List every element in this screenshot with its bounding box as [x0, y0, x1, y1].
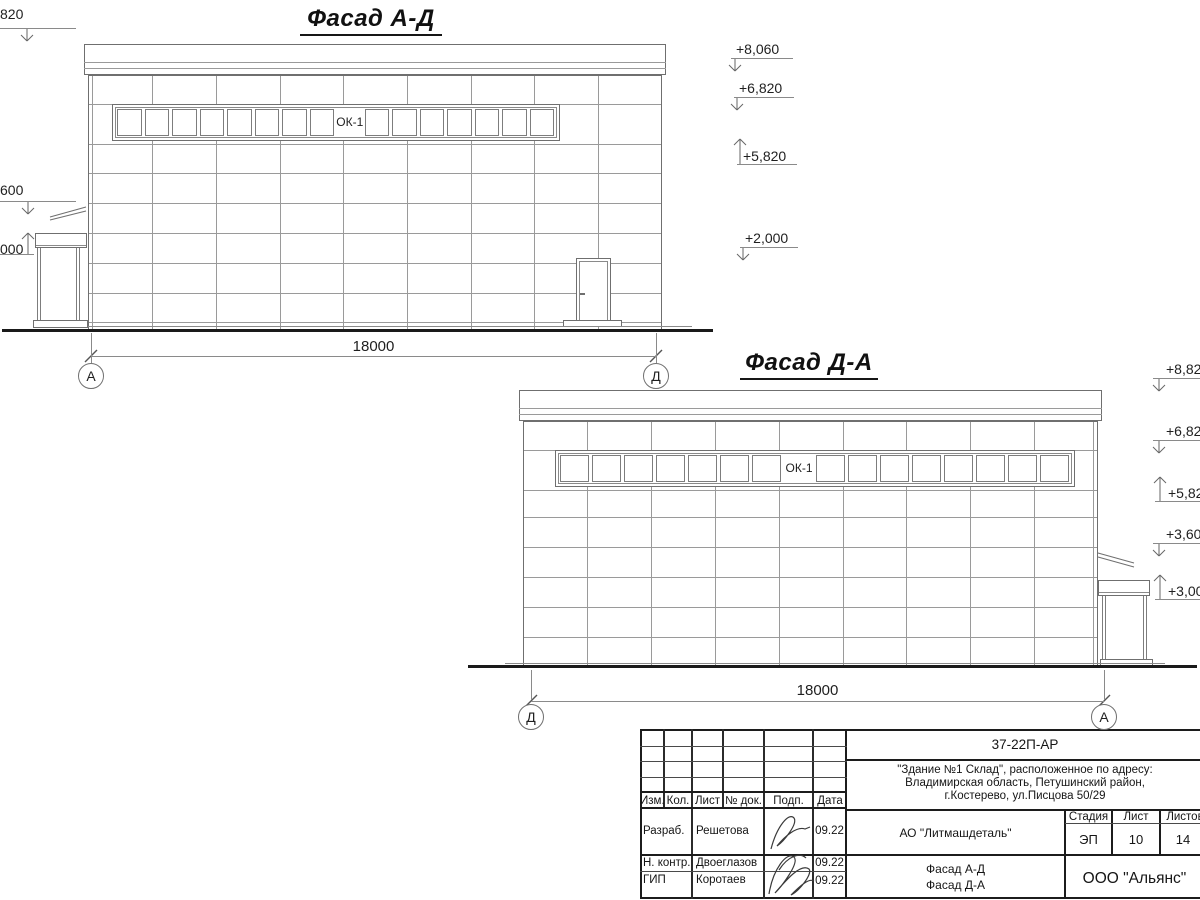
window-pane — [560, 455, 589, 482]
drawing-line — [1153, 550, 1159, 556]
drawing-line — [21, 35, 27, 41]
window-pane — [447, 109, 472, 136]
drawing-line — [28, 233, 34, 239]
signature-stroke — [779, 855, 806, 870]
window-pane — [624, 455, 653, 482]
signature-date: 09.22 — [813, 825, 846, 837]
panel-joint-line — [519, 414, 1102, 415]
stage-value: ЭП — [1066, 832, 1111, 847]
signature-role: Н. контр. — [643, 857, 690, 869]
drawing-line — [735, 65, 741, 71]
panel-joint-line — [505, 663, 1165, 664]
doc-number: 37-22П-АР — [847, 737, 1200, 752]
drawing-line — [731, 104, 737, 110]
panel-joint-line — [0, 28, 76, 29]
panel-joint-line — [524, 637, 1097, 638]
panel-joint-line — [40, 248, 41, 320]
panel-joint-line — [89, 203, 661, 204]
window-pane — [944, 455, 973, 482]
panel-joint-line — [1153, 378, 1200, 379]
panel-joint-line — [0, 254, 34, 255]
window-pane — [200, 109, 225, 136]
drawing-line — [740, 139, 746, 145]
panel-joint-line — [37, 248, 38, 320]
window-pane — [420, 109, 445, 136]
panel-joint-line — [1099, 592, 1149, 593]
window-pane — [117, 109, 142, 136]
window-pane — [502, 109, 527, 136]
stage-label: Стадия — [1066, 811, 1111, 823]
panel-joint-line — [1143, 596, 1144, 659]
panel-joint-line — [737, 164, 797, 165]
panel-joint-line — [531, 701, 1104, 702]
window-pane — [365, 109, 390, 136]
panel-joint-line — [1155, 501, 1200, 502]
porch-base — [33, 320, 88, 328]
title-block-border-left — [640, 729, 642, 899]
axis-bubble: А — [1091, 704, 1117, 730]
window-pane — [848, 455, 877, 482]
drawing-line — [737, 254, 743, 260]
drawing-line — [1153, 447, 1159, 453]
drawing-line — [1154, 575, 1160, 581]
porch-roof-slab — [1098, 580, 1150, 596]
title-block-divider — [691, 729, 693, 899]
drawing-line — [1098, 553, 1134, 563]
panel-joint-line — [531, 670, 532, 700]
title-block-border-bottom — [640, 897, 1200, 899]
drawing-line — [1159, 385, 1165, 391]
window-pane — [1040, 455, 1069, 482]
window-pane — [282, 109, 307, 136]
window-pane — [172, 109, 197, 136]
signature-name: Решетова — [696, 825, 749, 837]
panel-joint-line — [91, 356, 656, 357]
drawing-line — [1159, 550, 1165, 556]
panel-joint-line — [1093, 422, 1094, 666]
title-block-border-top — [640, 729, 1200, 731]
axis-bubble: Д — [518, 704, 544, 730]
entrance-door-leaf — [579, 261, 608, 323]
elevation-mark-label: +3,600 — [1166, 526, 1200, 542]
dimension-label: 18000 — [347, 338, 401, 355]
drawing-name-line: Фасад Д-А — [847, 878, 1064, 892]
panel-joint-line — [89, 173, 661, 174]
elevation-mark-label: +8,820 — [1166, 361, 1200, 377]
col-header-kol: Кол. — [665, 795, 691, 807]
drawing-line — [1160, 575, 1166, 581]
col-header-podp: Подп. — [765, 795, 812, 807]
col-header-list: Лист — [693, 795, 722, 807]
elevation-mark-label: +5,820 — [1168, 485, 1200, 501]
elevation-mark-label: +6,820 — [739, 80, 782, 96]
facade-da-title: Фасад Д-А — [740, 349, 878, 380]
title-block-rule — [640, 871, 846, 872]
ground-line — [468, 665, 1197, 668]
drawing-line — [1159, 447, 1165, 453]
panel-joint-line — [656, 333, 657, 363]
drawing-line — [1160, 477, 1166, 483]
axis-bubble: Д — [643, 363, 669, 389]
window-pane — [720, 455, 749, 482]
drawing-line — [734, 139, 740, 145]
elevation-mark-label: +2,000 — [745, 230, 788, 246]
panel-joint-line — [524, 547, 1097, 548]
drawing-line — [743, 254, 749, 260]
window-pane — [1008, 455, 1037, 482]
drawing-line — [1154, 477, 1160, 483]
signature-role: ГИП — [643, 874, 666, 886]
panel-joint-line — [89, 144, 661, 145]
elevation-mark-label: +8,060 — [736, 41, 779, 57]
drawing-line — [22, 208, 28, 214]
signature-name: Коротаев — [696, 874, 746, 886]
title-block-rule — [640, 777, 847, 778]
object-address-line: "Здание №1 Склад", расположенное по адре… — [847, 764, 1200, 776]
signature-stroke — [769, 856, 814, 895]
panel-joint-line — [1146, 596, 1147, 659]
title-block-rule — [640, 854, 1200, 856]
panel-joint-line — [0, 201, 76, 202]
window-pane — [656, 455, 685, 482]
sheet-value: 10 — [1113, 832, 1159, 847]
window-pane — [145, 109, 170, 136]
window-pane — [816, 455, 845, 482]
panel-joint-line — [524, 490, 1097, 491]
signature-stroke — [771, 817, 810, 849]
title-block-rule — [640, 791, 847, 793]
window-pane — [255, 109, 280, 136]
col-header-dok: № док. — [724, 795, 763, 807]
panel-joint-line — [734, 97, 794, 98]
title-block-rule — [640, 761, 847, 762]
panel-joint-line — [1102, 596, 1103, 659]
drawing-line — [1098, 557, 1134, 567]
col-header-izm: Изм. — [640, 795, 664, 807]
panel-joint-line — [89, 233, 661, 234]
signature-date: 09.22 — [813, 875, 846, 887]
client-company: АО "Литмашдеталь" — [847, 826, 1064, 840]
facade-ad-title: Фасад А-Д — [300, 5, 442, 36]
drawing-line — [1153, 385, 1159, 391]
drawing-line — [729, 65, 735, 71]
panel-joint-line — [1153, 543, 1200, 544]
panel-joint-line — [1104, 670, 1105, 700]
panel-joint-line — [524, 607, 1097, 608]
drawing-line — [22, 233, 28, 239]
title-block-rule — [640, 807, 847, 809]
elevation-mark-label: +6,820 — [1166, 423, 1200, 439]
panel-joint-line — [88, 326, 692, 327]
drawing-name-line: Фасад А-Д — [847, 862, 1064, 876]
drawing-line — [27, 35, 33, 41]
signature-date: 09.22 — [813, 857, 846, 869]
window-pane — [227, 109, 252, 136]
panel-joint-line — [1105, 596, 1106, 659]
window-pane — [392, 109, 417, 136]
window-pane — [976, 455, 1005, 482]
axis-bubble: А — [78, 363, 104, 389]
elevation-mark-label: 600 — [0, 182, 22, 198]
signature-role: Разраб. — [643, 825, 684, 837]
dimension-label: 18000 — [791, 682, 845, 699]
panel-joint-line — [740, 247, 798, 248]
drawing-line — [28, 208, 34, 214]
sheet-label: Лист — [1113, 811, 1159, 823]
window-pane — [592, 455, 621, 482]
panel-joint-line — [84, 62, 666, 63]
object-address-line: Владимирская область, Петушинский район, — [847, 777, 1200, 789]
title-block-rule — [1065, 823, 1200, 824]
drawing-line — [50, 207, 86, 217]
facade-fascia — [84, 44, 666, 75]
panel-joint-line — [91, 333, 92, 363]
drawing-line — [50, 211, 86, 220]
elevation-mark-label: 820 — [0, 6, 22, 22]
window-pane — [880, 455, 909, 482]
title-block-divider — [763, 729, 765, 899]
title-block-divider — [812, 729, 814, 899]
object-address-line: г.Костерево, ул.Писцова 50/29 — [847, 790, 1200, 802]
facade-fascia — [519, 390, 1102, 421]
col-header-data: Дата — [814, 795, 846, 807]
window-pane — [475, 109, 500, 136]
elevation-mark-label: +3,000 — [1168, 583, 1200, 599]
signature-name: Двоеглазов — [696, 857, 757, 869]
title-block-rule — [640, 746, 847, 747]
sheets-value: 14 — [1161, 832, 1200, 847]
ground-line — [2, 329, 713, 332]
panel-joint-line — [36, 245, 86, 246]
door-handle — [580, 293, 585, 295]
window-pane — [912, 455, 941, 482]
architectural-drawing-sheet: Фасад А-Д Фасад Д-А 37-22П-АР "Здание №1… — [0, 0, 1200, 900]
panel-joint-line — [731, 58, 793, 59]
panel-joint-line — [524, 577, 1097, 578]
elevation-mark-label: +5,820 — [743, 148, 786, 164]
drawing-line — [737, 104, 743, 110]
title-block-rule — [847, 759, 1200, 761]
sheets-label: Листов — [1161, 811, 1200, 823]
panel-joint-line — [524, 517, 1097, 518]
panel-joint-line — [84, 68, 666, 69]
panel-joint-line — [1153, 440, 1200, 441]
window-pane — [530, 109, 555, 136]
panel-joint-line — [76, 248, 77, 320]
panel-joint-line — [519, 408, 1102, 409]
panel-joint-line — [79, 248, 80, 320]
window-pane — [688, 455, 717, 482]
panel-joint-line — [1155, 599, 1200, 600]
design-org: ООО "Альянс" — [1066, 870, 1200, 888]
